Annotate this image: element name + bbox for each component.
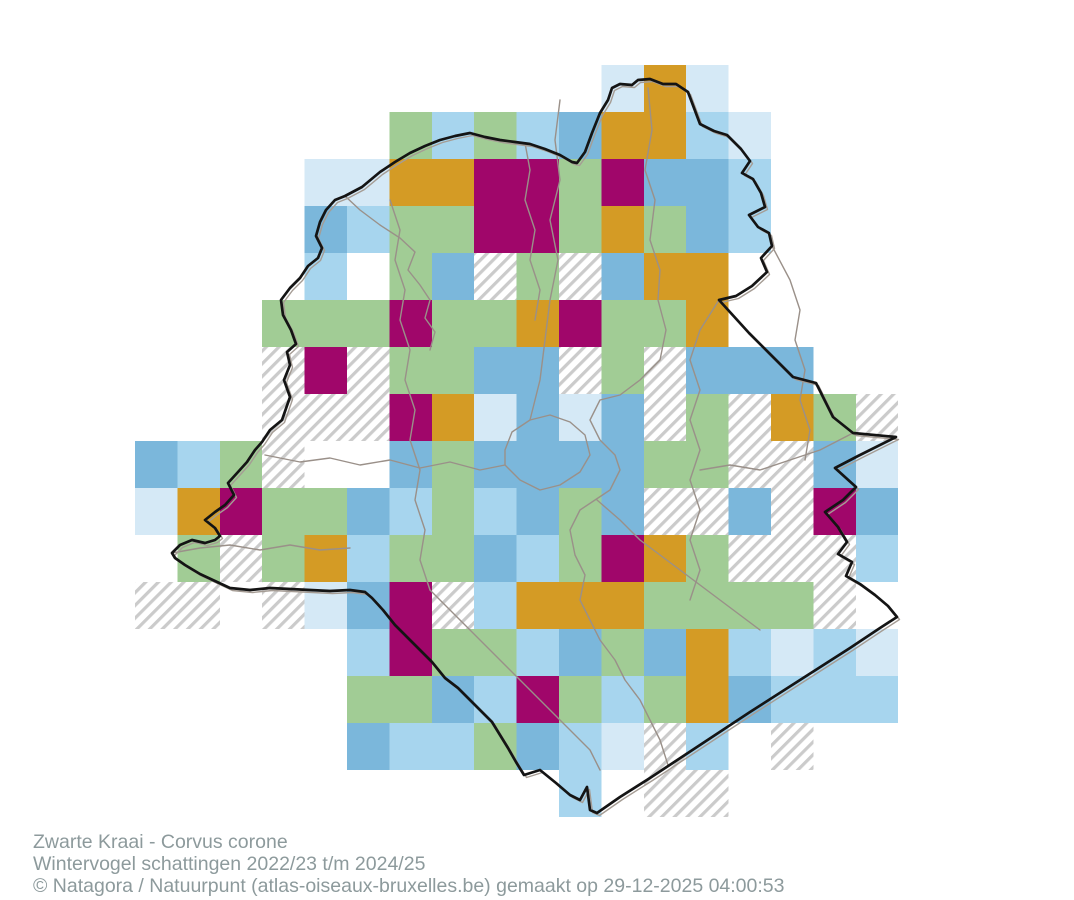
- grid-tile-r1-c12: [644, 112, 686, 159]
- grid-tile-r5-c3: [262, 300, 304, 347]
- grid-tile-r10-c15: [771, 535, 813, 582]
- grid-tile-r13-c10: [559, 676, 601, 723]
- grid-tile-r13-c11: [601, 676, 643, 723]
- grid-tile-r13-c5: [347, 676, 389, 723]
- grid-tile-r13-c17: [856, 676, 898, 723]
- grid-tile-r12-c8: [474, 629, 516, 676]
- grid-tile-r4-c11: [601, 253, 643, 300]
- grid-tile-r10-c5: [347, 535, 389, 582]
- grid-tile-r6-c11: [601, 347, 643, 394]
- grid-tile-r5-c6: [389, 300, 431, 347]
- grid-tile-r6-c6: [389, 347, 431, 394]
- grid-tile-r9-c5: [347, 488, 389, 535]
- grid-tile-r11-c5: [347, 582, 389, 629]
- grid-tile-r10-c9: [517, 535, 559, 582]
- grid-tile-r4-c8: [474, 253, 516, 300]
- grid-tile-r3-c11: [601, 206, 643, 253]
- grid-tile-r13-c8: [474, 676, 516, 723]
- grid-tile-r8-c3: [262, 441, 304, 488]
- grid-tile-r10-c3: [262, 535, 304, 582]
- grid-tile-r11-c13: [686, 582, 728, 629]
- grid-tile-r5-c10: [559, 300, 601, 347]
- grid-tile-r6-c10: [559, 347, 601, 394]
- grid-tile-r9-c3: [262, 488, 304, 535]
- grid-tile-r14-c9: [517, 723, 559, 770]
- grid-tile-r4-c13: [686, 253, 728, 300]
- grid-tile-r5-c12: [644, 300, 686, 347]
- grid-tile-r14-c7: [432, 723, 474, 770]
- grid-tile-r10-c7: [432, 535, 474, 582]
- grid-tile-r12-c15: [771, 629, 813, 676]
- grid-tile-r6-c7: [432, 347, 474, 394]
- grid-tile-r8-c14: [729, 441, 771, 488]
- grid-tile-r11-c12: [644, 582, 686, 629]
- grid-tile-r12-c10: [559, 629, 601, 676]
- grid-tile-r5-c7: [432, 300, 474, 347]
- grid-tile-r11-c15: [771, 582, 813, 629]
- grid-tile-r13-c6: [389, 676, 431, 723]
- grid-tile-r12-c11: [601, 629, 643, 676]
- grid-tile-r9-c7: [432, 488, 474, 535]
- grid-tile-r14-c5: [347, 723, 389, 770]
- grid-tile-r13-c15: [771, 676, 813, 723]
- grid-tile-r11-c6: [389, 582, 431, 629]
- grid-tile-r12-c5: [347, 629, 389, 676]
- grid-tile-r5-c13: [686, 300, 728, 347]
- grid-tile-r1-c11: [601, 112, 643, 159]
- grid-tile-r12-c9: [517, 629, 559, 676]
- grid-tile-r10-c4: [305, 535, 347, 582]
- grid-tile-r4-c10: [559, 253, 601, 300]
- grid-tile-r14-c15: [771, 723, 813, 770]
- grid-tile-r2-c11: [601, 159, 643, 206]
- grid-tile-r2-c12: [644, 159, 686, 206]
- grid-tile-r15-c13: [686, 770, 728, 817]
- grid-tile-r3-c8: [474, 206, 516, 253]
- grid-tile-r8-c1: [177, 441, 219, 488]
- grid-tile-r4-c12: [644, 253, 686, 300]
- grid-tile-r14-c11: [601, 723, 643, 770]
- grid-tile-r9-c15: [771, 488, 813, 535]
- grid-tile-r6-c5: [347, 347, 389, 394]
- grid-tile-r14-c10: [559, 723, 601, 770]
- species-title: Zwarte Kraai - Corvus corone: [33, 831, 784, 853]
- grid-tile-r8-c13: [686, 441, 728, 488]
- grid-tile-r8-c12: [644, 441, 686, 488]
- grid-tile-r10-c17: [856, 535, 898, 582]
- grid-tile-r7-c13: [686, 394, 728, 441]
- copyright-line: © Natagora / Natuurpunt (atlas-oiseaux-b…: [33, 875, 784, 897]
- grid-tile-r1-c14: [729, 112, 771, 159]
- grid-tile-r11-c10: [559, 582, 601, 629]
- grid-tile-r7-c7: [432, 394, 474, 441]
- grid-tile-r9-c9: [517, 488, 559, 535]
- grid-tile-r11-c7: [432, 582, 474, 629]
- grid-tile-r12-c6: [389, 629, 431, 676]
- grid-tile-r9-c4: [305, 488, 347, 535]
- grid-tile-r5-c5: [347, 300, 389, 347]
- grid-tile-r13-c16: [813, 676, 855, 723]
- grid-tile-r9-c2: [220, 488, 262, 535]
- grid-tile-r9-c14: [729, 488, 771, 535]
- grid-tile-r8-c0: [135, 441, 177, 488]
- bird-atlas-page: Zwarte Kraai - Corvus corone Wintervogel…: [0, 0, 1074, 900]
- grid-tile-r10-c13: [686, 535, 728, 582]
- grid-tile-r12-c14: [729, 629, 771, 676]
- grid-tile-r7-c4: [305, 394, 347, 441]
- grid-tile-r2-c7: [432, 159, 474, 206]
- grid-tile-r5-c4: [305, 300, 347, 347]
- grid-tile-r3-c9: [517, 206, 559, 253]
- grid-tile-r11-c16: [813, 582, 855, 629]
- grid-tile-r11-c0: [135, 582, 177, 629]
- grid-tile-r8-c17: [856, 441, 898, 488]
- grid-tile-r6-c14: [729, 347, 771, 394]
- bird-atlas-map: [0, 0, 1074, 900]
- grid-tile-r2-c10: [559, 159, 601, 206]
- grid-tile-r10-c8: [474, 535, 516, 582]
- grid-tile-r10-c11: [601, 535, 643, 582]
- grid-tile-r12-c12: [644, 629, 686, 676]
- grid-tile-r12-c13: [686, 629, 728, 676]
- grid-tile-r9-c10: [559, 488, 601, 535]
- grid-tile-r9-c12: [644, 488, 686, 535]
- grid-tile-r13-c13: [686, 676, 728, 723]
- grid-tile-r13-c12: [644, 676, 686, 723]
- grid-tile-r11-c9: [517, 582, 559, 629]
- grid-tile-r6-c8: [474, 347, 516, 394]
- grid-tile-r14-c6: [389, 723, 431, 770]
- grid-tile-r9-c17: [856, 488, 898, 535]
- grid-tile-r7-c14: [729, 394, 771, 441]
- grid-tile-r10-c14: [729, 535, 771, 582]
- grid-tile-r15-c10: [559, 770, 601, 817]
- grid-tile-r9-c11: [601, 488, 643, 535]
- grid-tile-r7-c15: [771, 394, 813, 441]
- grid-tile-r3-c7: [432, 206, 474, 253]
- grid-tile-r10-c10: [559, 535, 601, 582]
- grid-tile-r4-c7: [432, 253, 474, 300]
- grid-tile-r11-c8: [474, 582, 516, 629]
- grid-tile-r11-c1: [177, 582, 219, 629]
- grid-tile-r5-c11: [601, 300, 643, 347]
- grid-tile-r7-c10: [559, 394, 601, 441]
- grid-tile-r9-c0: [135, 488, 177, 535]
- grid-tile-r7-c11: [601, 394, 643, 441]
- grid-tile-r2-c9: [517, 159, 559, 206]
- grid-tile-r8-c8: [474, 441, 516, 488]
- grid-tile-r3-c13: [686, 206, 728, 253]
- grid-tile-r4-c4: [305, 253, 347, 300]
- grid-tile-r6-c3: [262, 347, 304, 394]
- grid-tile-r6-c15: [771, 347, 813, 394]
- grid-tile-r2-c13: [686, 159, 728, 206]
- grid-tile-r9-c13: [686, 488, 728, 535]
- grid-tile-r0-c11: [601, 65, 643, 112]
- grid-tile-r9-c8: [474, 488, 516, 535]
- grid-tile-r3-c6: [389, 206, 431, 253]
- grid-tile-r2-c8: [474, 159, 516, 206]
- survey-subtitle: Wintervogel schattingen 2022/23 t/m 2024…: [33, 853, 784, 875]
- grid-tile-r3-c10: [559, 206, 601, 253]
- grid-tile-r11-c11: [601, 582, 643, 629]
- grid-tile-r7-c12: [644, 394, 686, 441]
- grid-tile-r3-c5: [347, 206, 389, 253]
- grid-tile-r5-c8: [474, 300, 516, 347]
- grid-tile-r6-c4: [305, 347, 347, 394]
- grid-tile-r10-c2: [220, 535, 262, 582]
- grid-tile-r4-c9: [517, 253, 559, 300]
- grid-tile-r12-c17: [856, 629, 898, 676]
- grid-tile-r7-c8: [474, 394, 516, 441]
- caption: Zwarte Kraai - Corvus corone Wintervogel…: [33, 831, 784, 898]
- grid-tile-r9-c6: [389, 488, 431, 535]
- grid-tile-r3-c12: [644, 206, 686, 253]
- grid-tile-r8-c6: [389, 441, 431, 488]
- grid-tile-r7-c5: [347, 394, 389, 441]
